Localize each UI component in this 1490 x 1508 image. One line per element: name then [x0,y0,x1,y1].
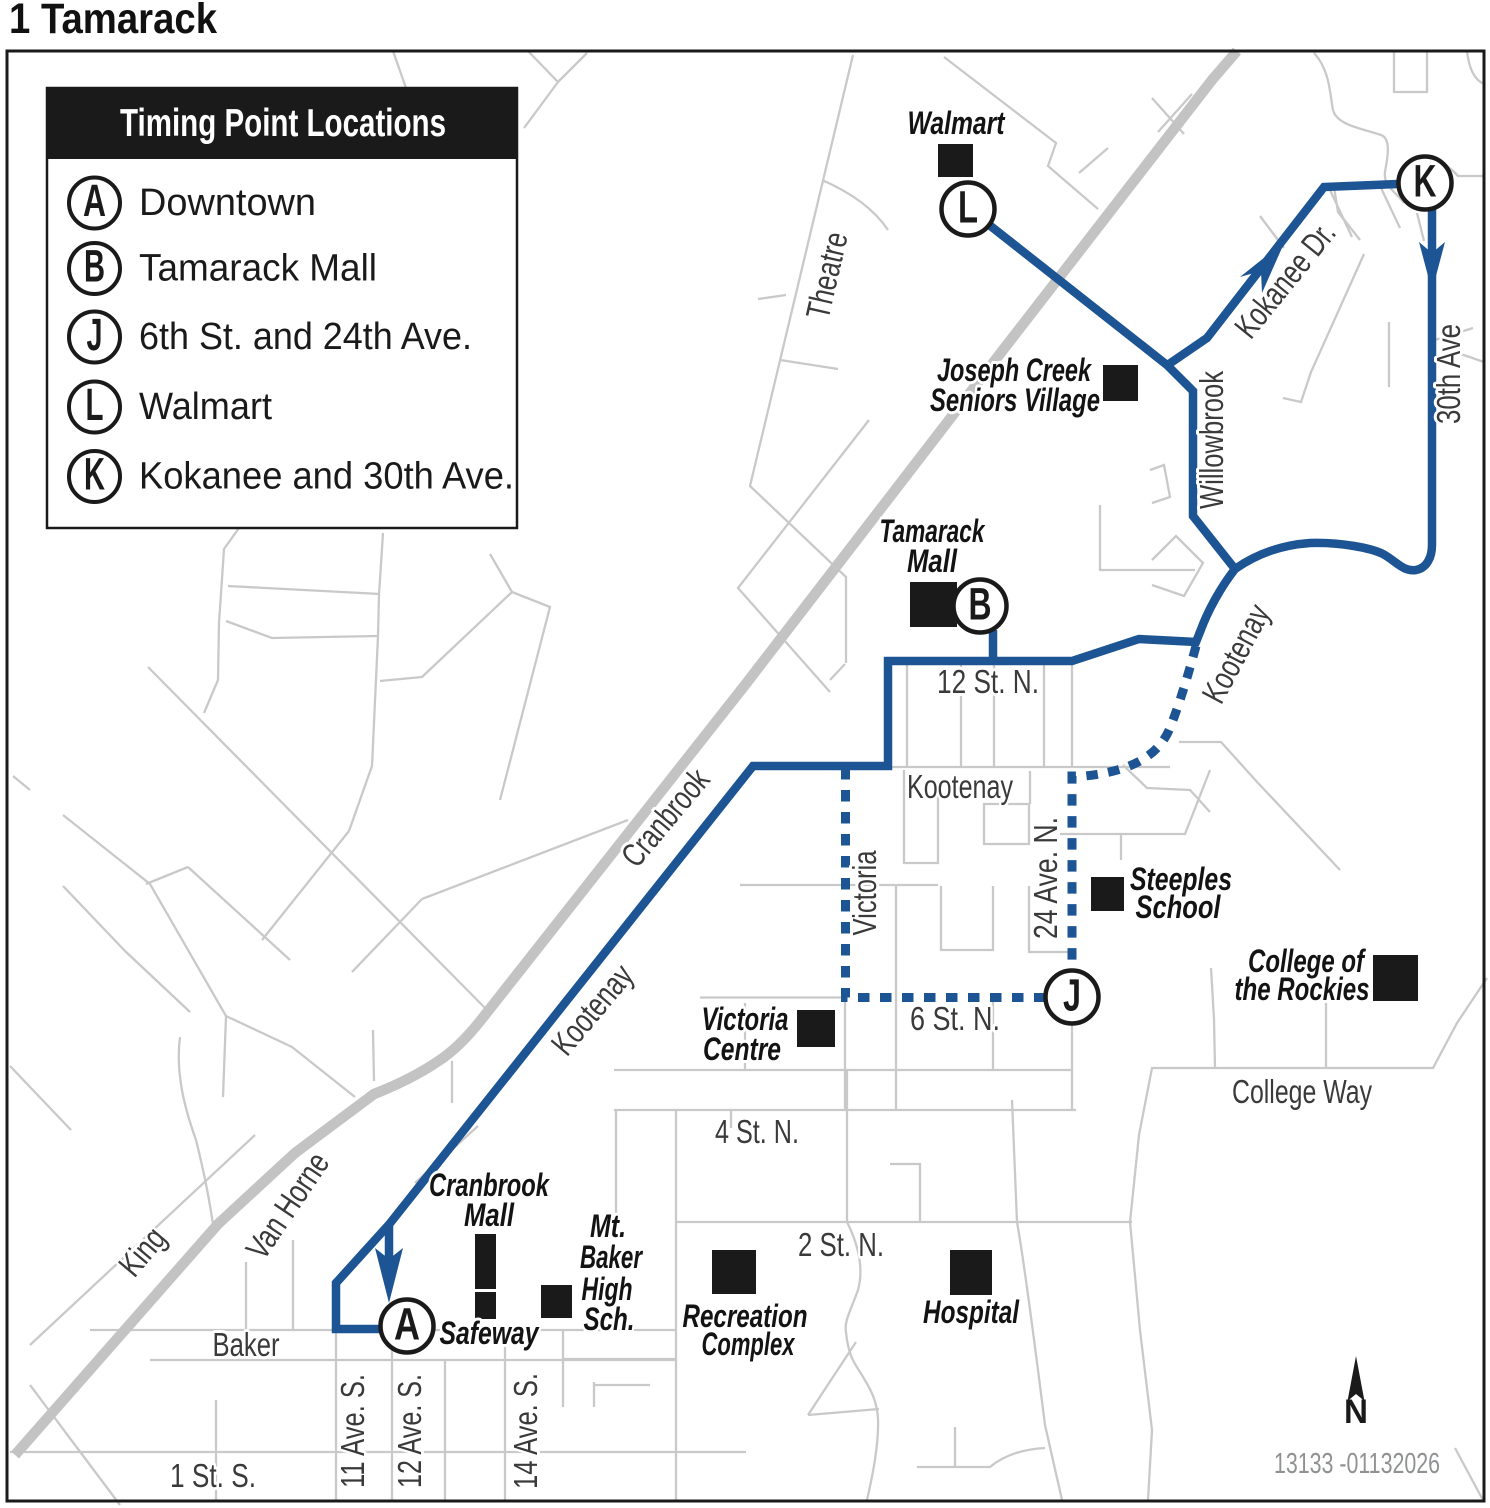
svg-text:Sch.: Sch. [584,1301,635,1337]
svg-text:6th St. and 24th Ave.: 6th St. and 24th Ave. [139,316,472,358]
svg-text:Kokanee and 30th Ave.: Kokanee and 30th Ave. [139,456,514,498]
svg-text:the Rockies: the Rockies [1235,971,1370,1007]
svg-text:K: K [84,449,105,500]
svg-text:Seniors Village: Seniors Village [930,382,1100,418]
svg-text:1 St. S.: 1 St. S. [170,1458,256,1495]
svg-text:Timing Point Locations: Timing Point Locations [120,102,446,145]
svg-text:11 Ave. S.: 11 Ave. S. [335,1374,372,1488]
svg-text:A: A [394,1299,420,1350]
svg-text:1 Tamarack: 1 Tamarack [9,0,217,43]
svg-text:2 St. N.: 2 St. N. [798,1227,884,1264]
svg-text:30th Ave: 30th Ave [1431,324,1468,424]
svg-text:24 Ave. N.: 24 Ave. N. [1028,817,1065,939]
svg-text:K: K [1414,156,1437,207]
svg-text:B: B [969,579,992,630]
svg-text:Tamarack Mall: Tamarack Mall [139,248,377,290]
svg-text:Downtown: Downtown [139,182,316,224]
svg-text:4 St. N.: 4 St. N. [715,1114,799,1151]
svg-text:6 St. N.: 6 St. N. [910,1001,1000,1038]
svg-text:Walmart: Walmart [908,105,1006,141]
svg-text:Hospital: Hospital [923,1294,1020,1330]
svg-text:Baker: Baker [213,1327,280,1364]
svg-text:Kootenay: Kootenay [907,769,1013,806]
svg-text:Mall: Mall [464,1197,515,1233]
svg-text:Complex: Complex [702,1326,796,1362]
svg-text:Walmart: Walmart [139,386,272,428]
svg-text:12 Ave. S.: 12 Ave. S. [392,1374,429,1488]
svg-text:13133 -01132026: 13133 -01132026 [1274,1448,1440,1480]
svg-text:14 Ave. S.: 14 Ave. S. [508,1373,545,1489]
svg-text:Safeway: Safeway [440,1315,541,1351]
svg-text:J: J [1063,970,1081,1021]
svg-text:College Way: College Way [1232,1074,1372,1111]
svg-text:N: N [1344,1393,1368,1431]
svg-text:12 St. N.: 12 St. N. [937,664,1039,701]
svg-text:School: School [1136,889,1222,925]
svg-text:L: L [86,379,104,430]
svg-text:J: J [87,309,103,360]
svg-text:Victoria: Victoria [847,850,884,935]
svg-text:Baker: Baker [580,1239,643,1275]
svg-text:Willowbrook: Willowbrook [1194,371,1231,509]
svg-text:B: B [84,241,105,292]
svg-text:A: A [83,175,106,226]
svg-text:Centre: Centre [703,1031,781,1067]
svg-text:Mall: Mall [907,543,958,579]
svg-text:L: L [958,182,978,233]
